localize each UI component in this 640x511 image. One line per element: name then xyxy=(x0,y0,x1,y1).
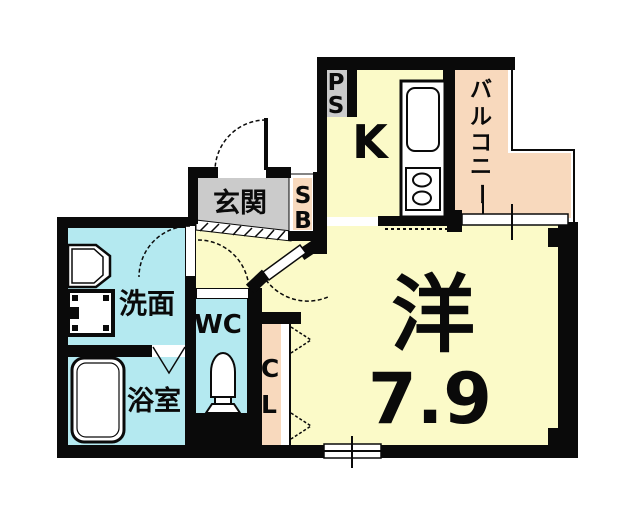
label-kitchen: K xyxy=(352,115,390,169)
label-bathroom: 浴室 xyxy=(127,385,181,417)
wall-plan-left xyxy=(57,217,68,458)
wall-right-notch-bottom xyxy=(548,428,558,450)
washer-tap xyxy=(69,307,79,319)
wall-top xyxy=(317,57,515,70)
room-closet xyxy=(262,324,281,445)
toilet-base xyxy=(206,404,240,413)
wall-entrance-left xyxy=(188,167,198,224)
label-sb-s: S xyxy=(295,183,312,209)
kitchen-opening xyxy=(327,217,378,226)
label-cl-c: C xyxy=(261,354,279,383)
label-balcony-3: コ xyxy=(470,131,492,156)
wall-right xyxy=(558,222,578,458)
label-balcony-5: ー xyxy=(468,183,493,205)
label-entrance: 玄関 xyxy=(213,187,267,219)
wc-door-opening xyxy=(197,289,248,298)
pipe-space-wall xyxy=(347,66,357,117)
floor-plan: 玄関 S B P S K バ ル コ ニ ー 洗面 WC 浴室 C L 洋 7.… xyxy=(0,0,640,511)
label-sb-b: B xyxy=(294,208,312,234)
label-balcony-4: ニ xyxy=(470,155,492,180)
wall-bath-divider xyxy=(57,345,152,357)
washer-tab-1 xyxy=(72,295,78,301)
toilet-neck xyxy=(215,397,231,404)
closet-track xyxy=(281,324,290,445)
label-main-room-size: 7.9 xyxy=(368,358,492,440)
kitchen-sink xyxy=(407,88,439,151)
washer-tab-2 xyxy=(103,295,109,301)
toilet-icon xyxy=(211,353,235,397)
floor-plan-canvas: 玄関 S B P S K バ ル コ ニ ー 洗面 WC 浴室 C L 洋 7.… xyxy=(0,0,640,511)
label-cl-l: L xyxy=(261,390,277,419)
wall-closet-top xyxy=(255,312,301,324)
wall-kitchen-left xyxy=(317,57,327,182)
bathtub-icon xyxy=(72,358,124,442)
closet-track-line xyxy=(289,316,291,446)
label-balcony-1: バ xyxy=(470,78,492,103)
wall-bottom xyxy=(57,445,578,458)
wall-washroom-top xyxy=(57,217,196,228)
washer-tab-3 xyxy=(72,325,78,331)
label-balcony-2: ル xyxy=(470,105,492,130)
wall-right-notch-top xyxy=(548,228,558,247)
balcony-window xyxy=(462,214,568,225)
wall-corner-block xyxy=(447,210,462,232)
label-washroom: 洗面 xyxy=(119,287,175,320)
wall-entrance-top-right xyxy=(266,167,291,178)
label-ps-s: S xyxy=(328,93,345,119)
front-door-panel xyxy=(264,118,268,170)
washroom-door-opening xyxy=(186,226,195,276)
label-wc: WC xyxy=(194,310,242,340)
label-main-room: 洋 xyxy=(391,266,475,364)
washer-tab-4 xyxy=(103,325,109,331)
